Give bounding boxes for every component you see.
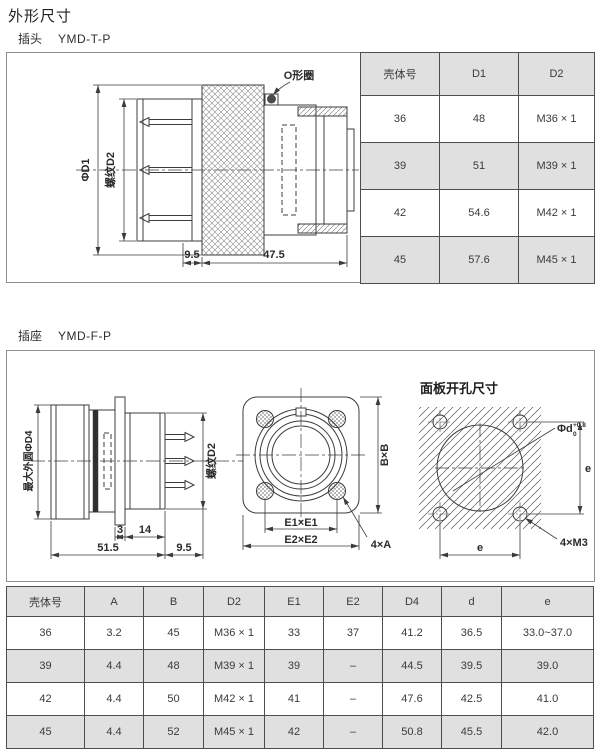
- table-cell: 42: [7, 683, 85, 716]
- dim-label-4xa: 4×A: [371, 539, 392, 551]
- dim-label-9-5: 9.5: [176, 542, 191, 554]
- column-header: d: [442, 587, 502, 617]
- panel-cutout-drawing: 面板开孔尺寸: [411, 377, 600, 579]
- table-row: 4557.6M45 × 1: [361, 237, 595, 284]
- oring-leader-line: [273, 82, 290, 95]
- mounting-hole: [257, 483, 274, 500]
- dim-label-max-phi-d4: 最大外圆ΦD4: [23, 430, 35, 491]
- table-row: 424.450M42 × 141–47.642.541.0: [7, 683, 594, 716]
- column-header: D4: [383, 587, 442, 617]
- table-header-row: 壳体号ABD2E1E2D4de: [7, 587, 594, 617]
- page: 外形尺寸 插头YMD-T-P: [0, 0, 600, 752]
- plug-dimension-table: 壳体号D1D23648M36 × 13951M39 × 14254.6M42 ×…: [360, 52, 595, 284]
- plug-section-label: 插头: [18, 32, 42, 46]
- dim-label-phi-d: Φd: [557, 423, 573, 435]
- panel-cutout-title: 面板开孔尺寸: [420, 381, 498, 396]
- dim-label-51-5: 51.5: [97, 542, 118, 554]
- table-cell: M42 × 1: [204, 683, 265, 716]
- oring-label: O形圈: [284, 69, 315, 82]
- table-cell: M39 × 1: [204, 650, 265, 683]
- table-cell: 48: [144, 650, 204, 683]
- column-header: A: [85, 587, 144, 617]
- holes-leader-line: [343, 497, 367, 537]
- table-cell: 42.0: [502, 716, 594, 749]
- table-cell: 45.5: [442, 716, 502, 749]
- table-cell: 33.0~37.0: [502, 617, 594, 650]
- dim-label-phi-d1: ΦD1: [80, 158, 92, 181]
- mounting-hole: [329, 411, 346, 428]
- table-cell: 33: [265, 617, 324, 650]
- table-cell: 39: [361, 143, 440, 190]
- table-cell: 39.0: [502, 650, 594, 683]
- socket-dimension-table: 壳体号ABD2E1E2D4de363.245M36 × 1333741.236.…: [6, 586, 594, 749]
- plug-table-container: 壳体号D1D23648M36 × 13951M39 × 14254.6M42 ×…: [360, 52, 595, 284]
- table-cell: 3.2: [85, 617, 144, 650]
- socket-model-label: YMD-F-P: [58, 329, 112, 343]
- table-cell: 42.5: [442, 683, 502, 716]
- table-cell: 4.4: [85, 650, 144, 683]
- contact-pin: [165, 481, 194, 490]
- table-row: 394.448M39 × 139–44.539.539.0: [7, 650, 594, 683]
- mounting-hole: [329, 483, 346, 500]
- table-row: 3648M36 × 1: [361, 96, 595, 143]
- dim-label-4xm3: 4×M3: [560, 537, 588, 549]
- socket-section-heading: 插座YMD-F-P: [18, 327, 112, 344]
- table-cell: 45: [7, 716, 85, 749]
- column-header: e: [502, 587, 594, 617]
- table-cell: M45 × 1: [519, 237, 595, 284]
- table-cell: 41.0: [502, 683, 594, 716]
- tolerance-lower: 0: [573, 431, 577, 438]
- dim-label-e-horizontal: e: [477, 542, 483, 554]
- table-cell: 45: [144, 617, 204, 650]
- column-header: E2: [324, 587, 383, 617]
- table-cell: 37: [324, 617, 383, 650]
- table-cell: 36.5: [442, 617, 502, 650]
- plug-section-heading: 插头YMD-T-P: [18, 30, 111, 47]
- dim-label-thread-d2: 螺纹D2: [204, 443, 218, 479]
- plug-model-label: YMD-T-P: [58, 32, 111, 46]
- dim-label-bxb: B×B: [379, 444, 391, 466]
- socket-side-view-drawing: 最大外圆ΦD4 螺纹D2 3 14 51.5 9.5: [23, 387, 248, 565]
- table-cell: M39 × 1: [519, 143, 595, 190]
- column-header: 壳体号: [7, 587, 85, 617]
- flange-front-outline: [236, 388, 366, 522]
- table-cell: –: [324, 683, 383, 716]
- column-header: E1: [265, 587, 324, 617]
- knurled-ring: [202, 85, 264, 255]
- table-row: 454.452M45 × 142–50.845.542.0: [7, 716, 594, 749]
- socket-front-view-drawing: B×B E1×E1 E2×E2 4×A: [235, 385, 410, 567]
- o-ring: [267, 95, 276, 104]
- dim-label-9-5: 9.5: [184, 249, 199, 261]
- table-cell: 50: [144, 683, 204, 716]
- table-cell: 51: [440, 143, 519, 190]
- table-row: 363.245M36 × 1333741.236.533.0~37.0: [7, 617, 594, 650]
- contact-pin: [140, 118, 192, 127]
- table-cell: 36: [361, 96, 440, 143]
- column-header: 壳体号: [361, 53, 440, 96]
- table-cell: 39: [7, 650, 85, 683]
- column-header: D2: [519, 53, 595, 96]
- dim-label-14: 14: [139, 524, 152, 536]
- table-cell: 41: [265, 683, 324, 716]
- column-header: D2: [204, 587, 265, 617]
- table-header-row: 壳体号D1D2: [361, 53, 595, 96]
- seal-band: [93, 410, 98, 512]
- table-cell: M36 × 1: [204, 617, 265, 650]
- dim-label-e-vertical: e: [585, 463, 591, 475]
- table-cell: 50.8: [383, 716, 442, 749]
- dim-label-e1xe1: E1×E1: [284, 517, 317, 529]
- plug-figure-panel: ΦD1 螺纹D2 O形圈 9.5 47.5 壳体号D1D23648M36 × 1…: [6, 52, 595, 283]
- table-cell: 41.2: [383, 617, 442, 650]
- table-cell: 42: [265, 716, 324, 749]
- table-cell: 39: [265, 650, 324, 683]
- table-cell: 52: [144, 716, 204, 749]
- table-cell: 4.4: [85, 716, 144, 749]
- table-row: 3951M39 × 1: [361, 143, 595, 190]
- dim-label-3: 3: [117, 524, 123, 536]
- table-cell: –: [324, 650, 383, 683]
- contact-pin: [165, 433, 194, 442]
- table-cell: 54.6: [440, 190, 519, 237]
- table-row: 4254.6M42 × 1: [361, 190, 595, 237]
- table-cell: 44.5: [383, 650, 442, 683]
- socket-table-container: 壳体号ABD2E1E2D4de363.245M36 × 1333741.236.…: [6, 586, 594, 749]
- table-cell: M45 × 1: [204, 716, 265, 749]
- table-cell: 48: [440, 96, 519, 143]
- table-cell: 36: [7, 617, 85, 650]
- table-cell: M42 × 1: [519, 190, 595, 237]
- table-cell: 4.4: [85, 683, 144, 716]
- dim-label-thread-d2: 螺纹D2: [103, 152, 117, 188]
- tolerance-upper: +0.8: [573, 422, 586, 429]
- column-header: B: [144, 587, 204, 617]
- table-cell: 57.6: [440, 237, 519, 284]
- table-cell: M36 × 1: [519, 96, 595, 143]
- table-cell: –: [324, 716, 383, 749]
- table-cell: 47.6: [383, 683, 442, 716]
- dim-label-47-5: 47.5: [263, 249, 284, 261]
- table-cell: 39.5: [442, 650, 502, 683]
- page-title: 外形尺寸: [8, 5, 72, 26]
- column-header: D1: [440, 53, 519, 96]
- panel-outline: [419, 407, 555, 529]
- dim-label-e2xe2: E2×E2: [284, 534, 317, 546]
- plug-body-outline: [76, 85, 359, 255]
- contact-pin: [140, 214, 192, 223]
- socket-section-label: 插座: [18, 329, 42, 343]
- coupling-shell: [51, 405, 89, 519]
- table-cell: 45: [361, 237, 440, 284]
- plug-side-view-drawing: ΦD1 螺纹D2 O形圈 9.5 47.5: [62, 67, 362, 275]
- table-cell: 42: [361, 190, 440, 237]
- socket-figure-panel: 最大外圆ΦD4 螺纹D2 3 14 51.5 9.5: [6, 350, 595, 582]
- mounting-hole: [257, 411, 274, 428]
